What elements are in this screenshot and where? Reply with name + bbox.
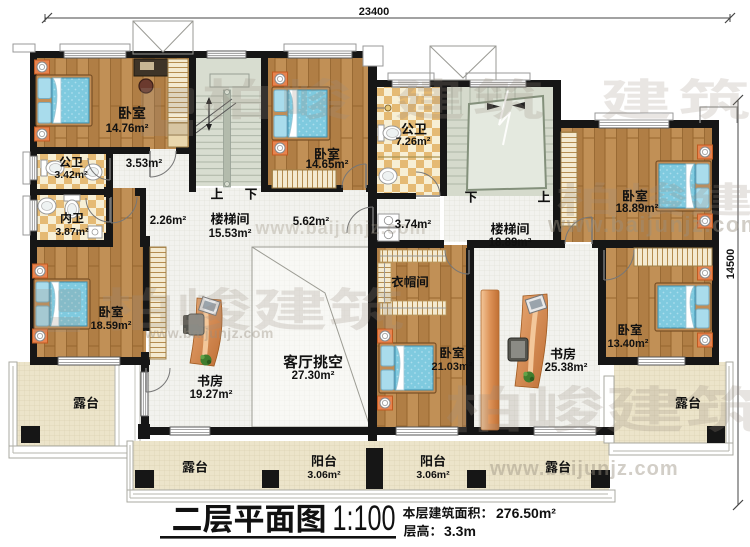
svg-text:19.27m²: 19.27m² [190, 389, 233, 401]
svg-text:3.53m²: 3.53m² [126, 158, 163, 170]
svg-text:14500: 14500 [725, 249, 737, 280]
svg-text:21.03m²: 21.03m² [432, 361, 473, 373]
svg-text:5.62m²: 5.62m² [293, 216, 330, 228]
svg-text:3.42m²: 3.42m² [54, 169, 88, 181]
svg-text:3.06m²: 3.06m² [307, 469, 341, 481]
svg-text:25.38m²: 25.38m² [545, 362, 588, 374]
svg-text:www.baijunjz.com: www.baijunjz.com [489, 458, 679, 480]
svg-text:3.74m²: 3.74m² [395, 219, 432, 231]
svg-text:14.65m²: 14.65m² [306, 159, 349, 171]
svg-text:23400: 23400 [359, 6, 390, 18]
svg-text:13.40m²: 13.40m² [608, 338, 649, 350]
svg-text:2.26m²: 2.26m² [150, 215, 187, 227]
svg-text:27.30m²: 27.30m² [292, 370, 335, 382]
svg-text:www.baijunjz.com: www.baijunjz.com [547, 212, 750, 237]
svg-text:7.26m²: 7.26m² [396, 136, 431, 148]
svg-text:3.3m: 3.3m [444, 523, 476, 539]
svg-text:3.06m²: 3.06m² [416, 469, 450, 481]
svg-text:3.87m²: 3.87m² [55, 226, 89, 238]
svg-text:276.50m²: 276.50m² [496, 505, 556, 521]
svg-text:14.76m²: 14.76m² [106, 123, 149, 135]
svg-text:18.89m²: 18.89m² [616, 203, 659, 215]
svg-text:1:100: 1:100 [332, 499, 395, 538]
svg-text:18.59m²: 18.59m² [91, 320, 132, 332]
svg-text:www.baijunjz.com: www.baijunjz.com [144, 325, 274, 341]
svg-text:18.89m²: 18.89m² [489, 237, 532, 249]
svg-text:15.53m²: 15.53m² [209, 228, 252, 240]
